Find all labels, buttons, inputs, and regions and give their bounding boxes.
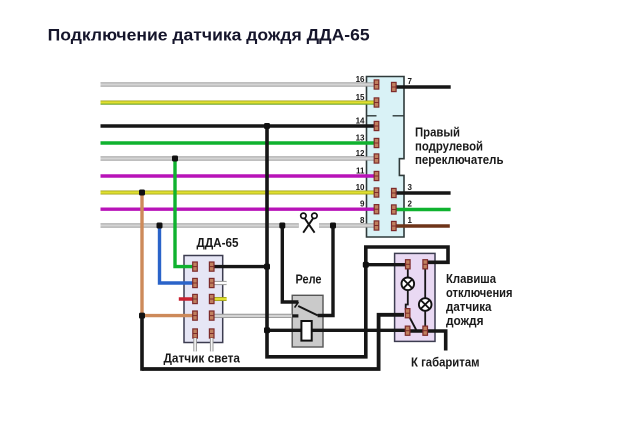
svg-text:2: 2: [408, 200, 413, 209]
svg-text:дождя: дождя: [446, 314, 484, 328]
svg-text:8: 8: [360, 216, 365, 225]
svg-text:Клавиша: Клавиша: [446, 272, 497, 286]
svg-text:7: 7: [408, 77, 413, 86]
svg-text:9: 9: [360, 200, 365, 209]
svg-text:подрулевой: подрулевой: [415, 140, 483, 154]
svg-text:датчика: датчика: [446, 300, 492, 314]
svg-text:15: 15: [356, 93, 365, 102]
svg-text:переключатель: переключатель: [415, 153, 504, 167]
svg-text:10: 10: [356, 183, 365, 192]
svg-text:К габаритам: К габаритам: [411, 356, 480, 370]
svg-text:отключения: отключения: [446, 286, 513, 300]
svg-text:16: 16: [356, 75, 365, 84]
svg-text:Правый: Правый: [415, 126, 460, 140]
svg-text:13: 13: [356, 134, 365, 143]
svg-text:11: 11: [356, 167, 365, 176]
svg-text:Датчик света: Датчик света: [164, 352, 241, 366]
svg-text:1: 1: [408, 216, 413, 225]
svg-text:Подключение датчика дождя ДДА-: Подключение датчика дождя ДДА-65: [48, 26, 370, 44]
svg-text:ДДА-65: ДДА-65: [197, 236, 239, 250]
svg-text:Реле: Реле: [296, 273, 322, 287]
svg-text:12: 12: [356, 149, 365, 158]
svg-text:14: 14: [356, 117, 365, 126]
svg-text:3: 3: [408, 183, 413, 192]
